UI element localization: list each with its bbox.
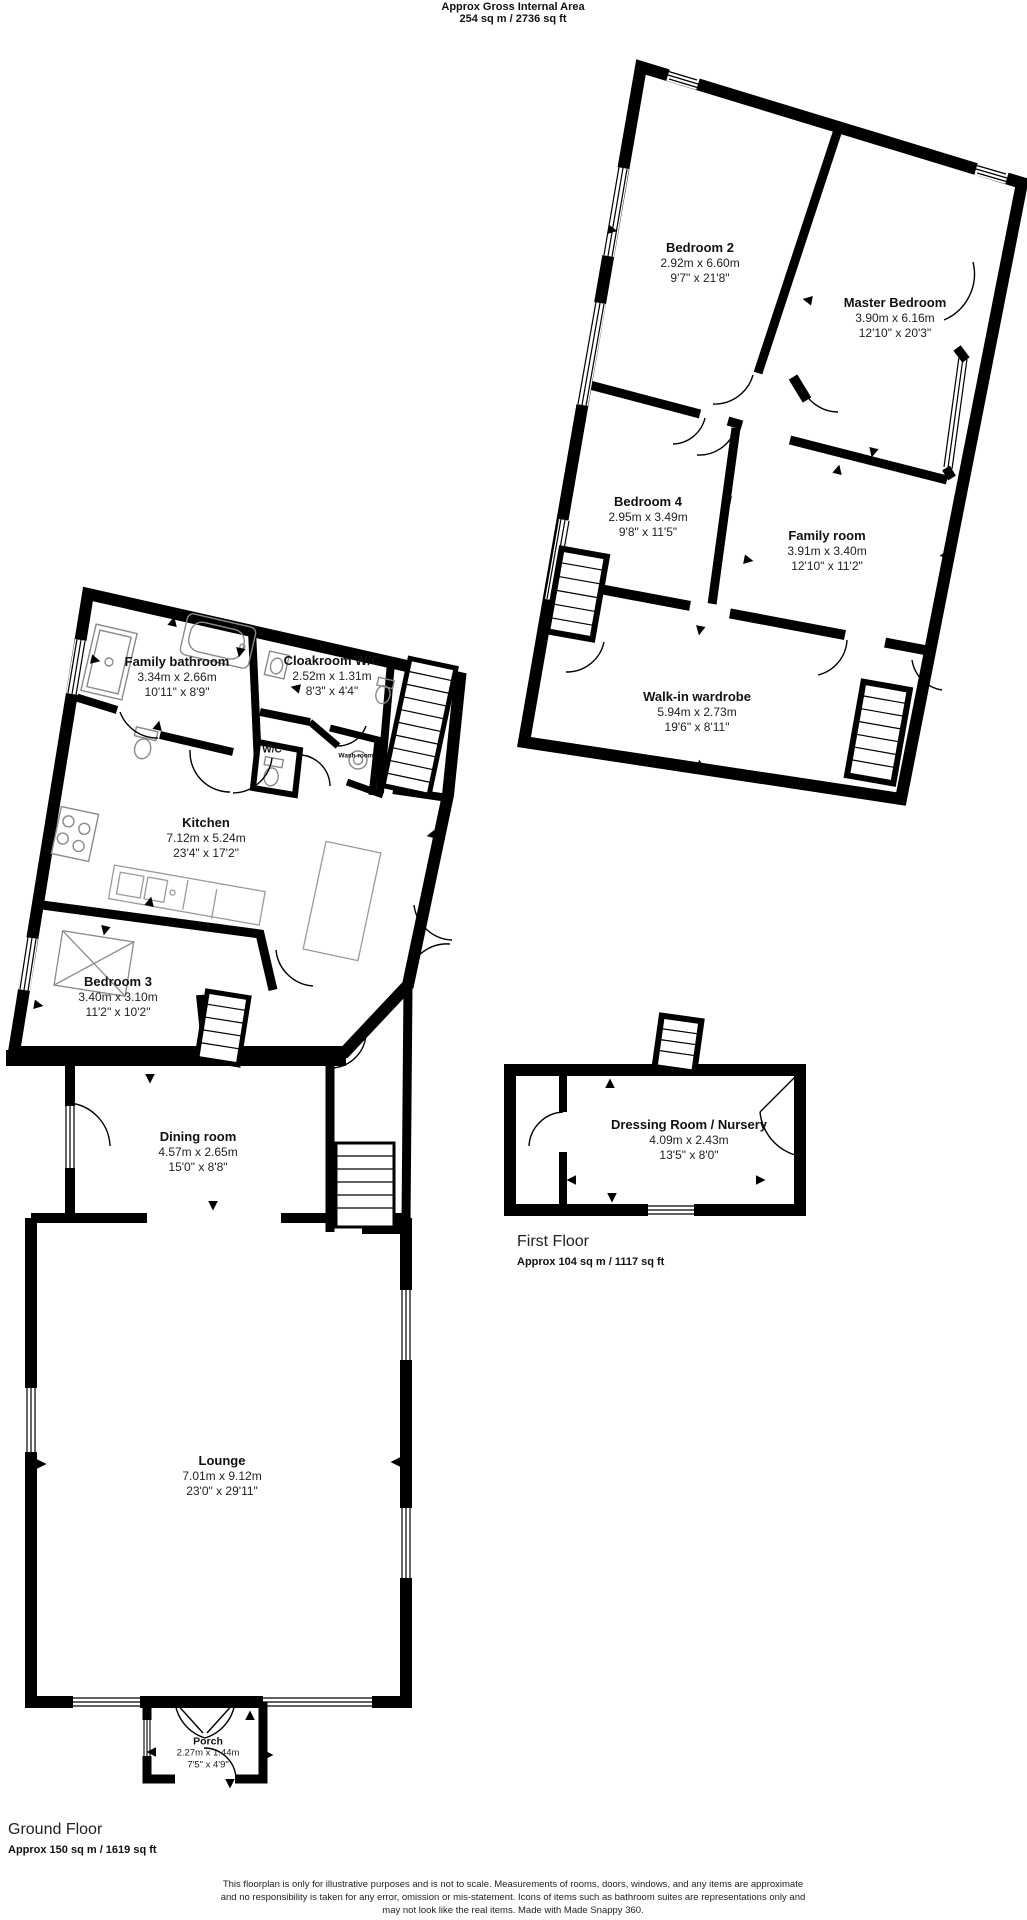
dressing-room-plan: [510, 1016, 800, 1214]
room-label-lounge: Lounge 7.01m x 9.12m 23'0" x 29'11": [182, 1453, 261, 1499]
floorplan-page: Approx Gross Internal Area 254 sq m / 27…: [0, 0, 1027, 1920]
room-label-bedroom-2: Bedroom 2 2.92m x 6.60m 9'7" x 21'8": [660, 240, 739, 286]
room-label-family-room: Family room 3.91m x 3.40m 12'10" x 11'2": [787, 528, 866, 574]
first-floor-plan: [524, 67, 1022, 799]
first-floor-heading: First Floor Approx 104 sq m / 1117 sq ft: [517, 1232, 664, 1269]
floorplan-drawing: [0, 0, 1027, 1920]
gross-internal-area-header: Approx Gross Internal Area 254 sq m / 27…: [441, 1, 584, 25]
ground-floor-area: Approx 150 sq m / 1619 sq ft: [8, 1843, 157, 1857]
ground-floor-title: Ground Floor: [8, 1820, 157, 1840]
disclaimer-line-3: may not look like the real items. Made w…: [83, 1904, 943, 1917]
ground-floor-lower-plan: [27, 985, 410, 1789]
window-porch-left: [144, 1720, 150, 1756]
first-floor-title: First Floor: [517, 1232, 664, 1252]
window-dressing-bottom: [648, 1206, 694, 1214]
wash-room-label: Wash room: [338, 753, 373, 760]
room-label-master-bedroom: Master Bedroom 3.90m x 6.16m 12'10" x 20…: [844, 295, 947, 341]
room-label-cloakroom-wc: Cloakroom W/C 2.52m x 1.31m 8'3" x 4'4": [284, 653, 381, 699]
header-line-2: 254 sq m / 2736 sq ft: [441, 13, 584, 25]
wc-label: W/C: [262, 745, 281, 756]
shared-wall: [6, 1050, 346, 1066]
room-label-walk-in-wardrobe: Walk-in wardrobe 5.94m x 2.73m 19'6" x 8…: [643, 689, 751, 735]
stairs-dressing: [655, 1016, 702, 1073]
ground-floor-heading: Ground Floor Approx 150 sq m / 1619 sq f…: [8, 1820, 157, 1857]
disclaimer-line-1: This floorplan is only for illustrative …: [83, 1878, 943, 1891]
stairs-ground-mid: [197, 991, 249, 1065]
room-label-dressing-room-nursery: Dressing Room / Nursery 4.09m x 2.43m 13…: [611, 1117, 767, 1163]
room-label-bedroom-3: Bedroom 3 3.40m x 3.10m 11'2" x 10'2": [78, 974, 157, 1020]
room-label-porch: Porch 2.27m x 1.44m 7'5" x 4'9": [177, 1736, 240, 1771]
room-label-dining-room: Dining room 4.57m x 2.65m 15'0" x 8'8": [158, 1129, 237, 1175]
room-label-kitchen: Kitchen 7.12m x 5.24m 23'4" x 17'2": [166, 815, 245, 861]
header-line-1: Approx Gross Internal Area: [441, 1, 584, 13]
stairs-dining: [336, 1143, 394, 1227]
first-floor-area: Approx 104 sq m / 1117 sq ft: [517, 1255, 664, 1269]
disclaimer-footer: This floorplan is only for illustrative …: [83, 1878, 943, 1917]
window-dining-left: [66, 1106, 74, 1168]
disclaimer-line-2: and no responsibility is taken for any e…: [83, 1891, 943, 1904]
room-label-bedroom-4: Bedroom 4 2.95m x 3.49m 9'8" x 11'5": [608, 494, 687, 540]
room-label-family-bathroom: Family bathroom 3.34m x 2.66m 10'11" x 8…: [125, 654, 230, 700]
